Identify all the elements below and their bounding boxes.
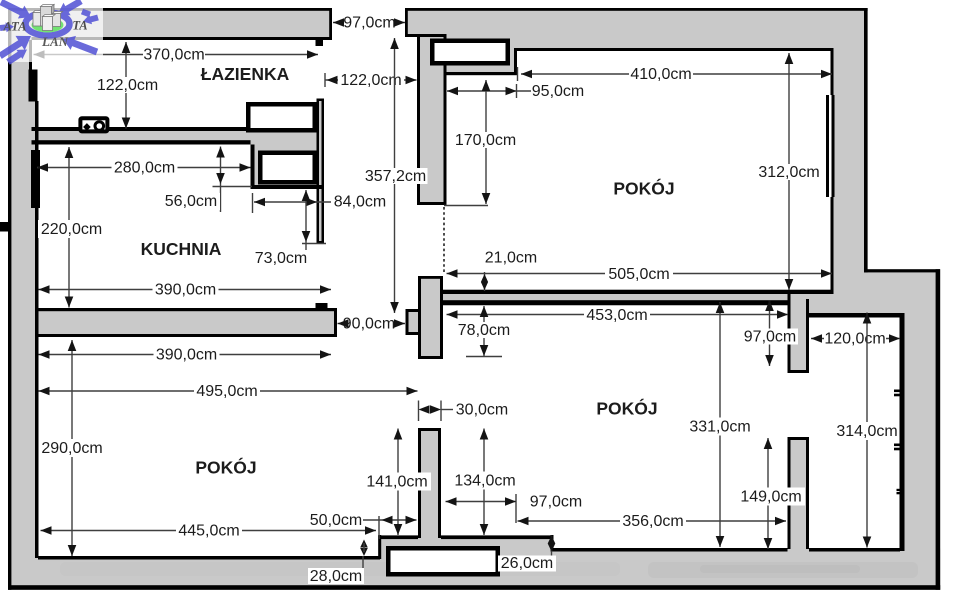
- svg-text:331,0cm: 331,0cm: [689, 419, 750, 436]
- svg-text:26,0cm: 26,0cm: [501, 555, 553, 572]
- svg-text:495,0cm: 495,0cm: [196, 383, 257, 400]
- svg-text:220,0cm: 220,0cm: [41, 221, 102, 238]
- svg-text:357,2cm: 357,2cm: [365, 168, 426, 185]
- svg-text:505,0cm: 505,0cm: [608, 266, 669, 283]
- svg-text:97,0cm: 97,0cm: [343, 15, 395, 32]
- svg-text:LAN: LAN: [41, 34, 69, 49]
- svg-text:314,0cm: 314,0cm: [836, 423, 897, 440]
- svg-text:50,0cm: 50,0cm: [310, 512, 362, 529]
- svg-text:KUCHNIA: KUCHNIA: [141, 239, 222, 259]
- svg-text:445,0cm: 445,0cm: [178, 523, 239, 540]
- svg-text:290,0cm: 290,0cm: [41, 440, 102, 457]
- svg-text:390,0cm: 390,0cm: [156, 347, 217, 364]
- svg-text:TA: TA: [72, 19, 87, 33]
- svg-text:280,0cm: 280,0cm: [114, 160, 175, 177]
- svg-text:73,0cm: 73,0cm: [255, 250, 307, 267]
- svg-text:390,0cm: 390,0cm: [155, 282, 216, 299]
- svg-text:370,0cm: 370,0cm: [143, 47, 204, 64]
- svg-text:28,0cm: 28,0cm: [310, 568, 362, 585]
- svg-text:90,0cm: 90,0cm: [343, 316, 395, 333]
- svg-text:ATA: ATA: [3, 20, 27, 34]
- svg-text:97,0cm: 97,0cm: [744, 329, 796, 346]
- svg-text:POKÓJ: POKÓJ: [596, 398, 657, 419]
- svg-text:356,0cm: 356,0cm: [622, 513, 683, 530]
- svg-text:21,0cm: 21,0cm: [485, 250, 537, 267]
- svg-text:170,0cm: 170,0cm: [455, 132, 516, 149]
- svg-text:453,0cm: 453,0cm: [586, 307, 647, 324]
- svg-text:POKÓJ: POKÓJ: [195, 457, 256, 478]
- svg-text:56,0cm: 56,0cm: [165, 193, 217, 210]
- svg-text:30,0cm: 30,0cm: [456, 402, 508, 419]
- svg-text:122,0cm: 122,0cm: [340, 72, 401, 89]
- svg-text:78,0cm: 78,0cm: [458, 322, 510, 339]
- svg-text:84,0cm: 84,0cm: [334, 194, 386, 211]
- svg-text:312,0cm: 312,0cm: [758, 164, 819, 181]
- svg-text:134,0cm: 134,0cm: [454, 473, 515, 490]
- svg-text:95,0cm: 95,0cm: [532, 83, 584, 100]
- svg-text:141,0cm: 141,0cm: [366, 474, 427, 491]
- svg-text:410,0cm: 410,0cm: [630, 66, 691, 83]
- svg-text:ŁAZIENKA: ŁAZIENKA: [201, 64, 290, 84]
- svg-text:97,0cm: 97,0cm: [530, 494, 582, 511]
- svg-text:120,0cm: 120,0cm: [824, 331, 885, 348]
- svg-text:122,0cm: 122,0cm: [97, 77, 158, 94]
- svg-text:POKÓJ: POKÓJ: [613, 178, 674, 199]
- svg-text:149,0cm: 149,0cm: [740, 489, 801, 506]
